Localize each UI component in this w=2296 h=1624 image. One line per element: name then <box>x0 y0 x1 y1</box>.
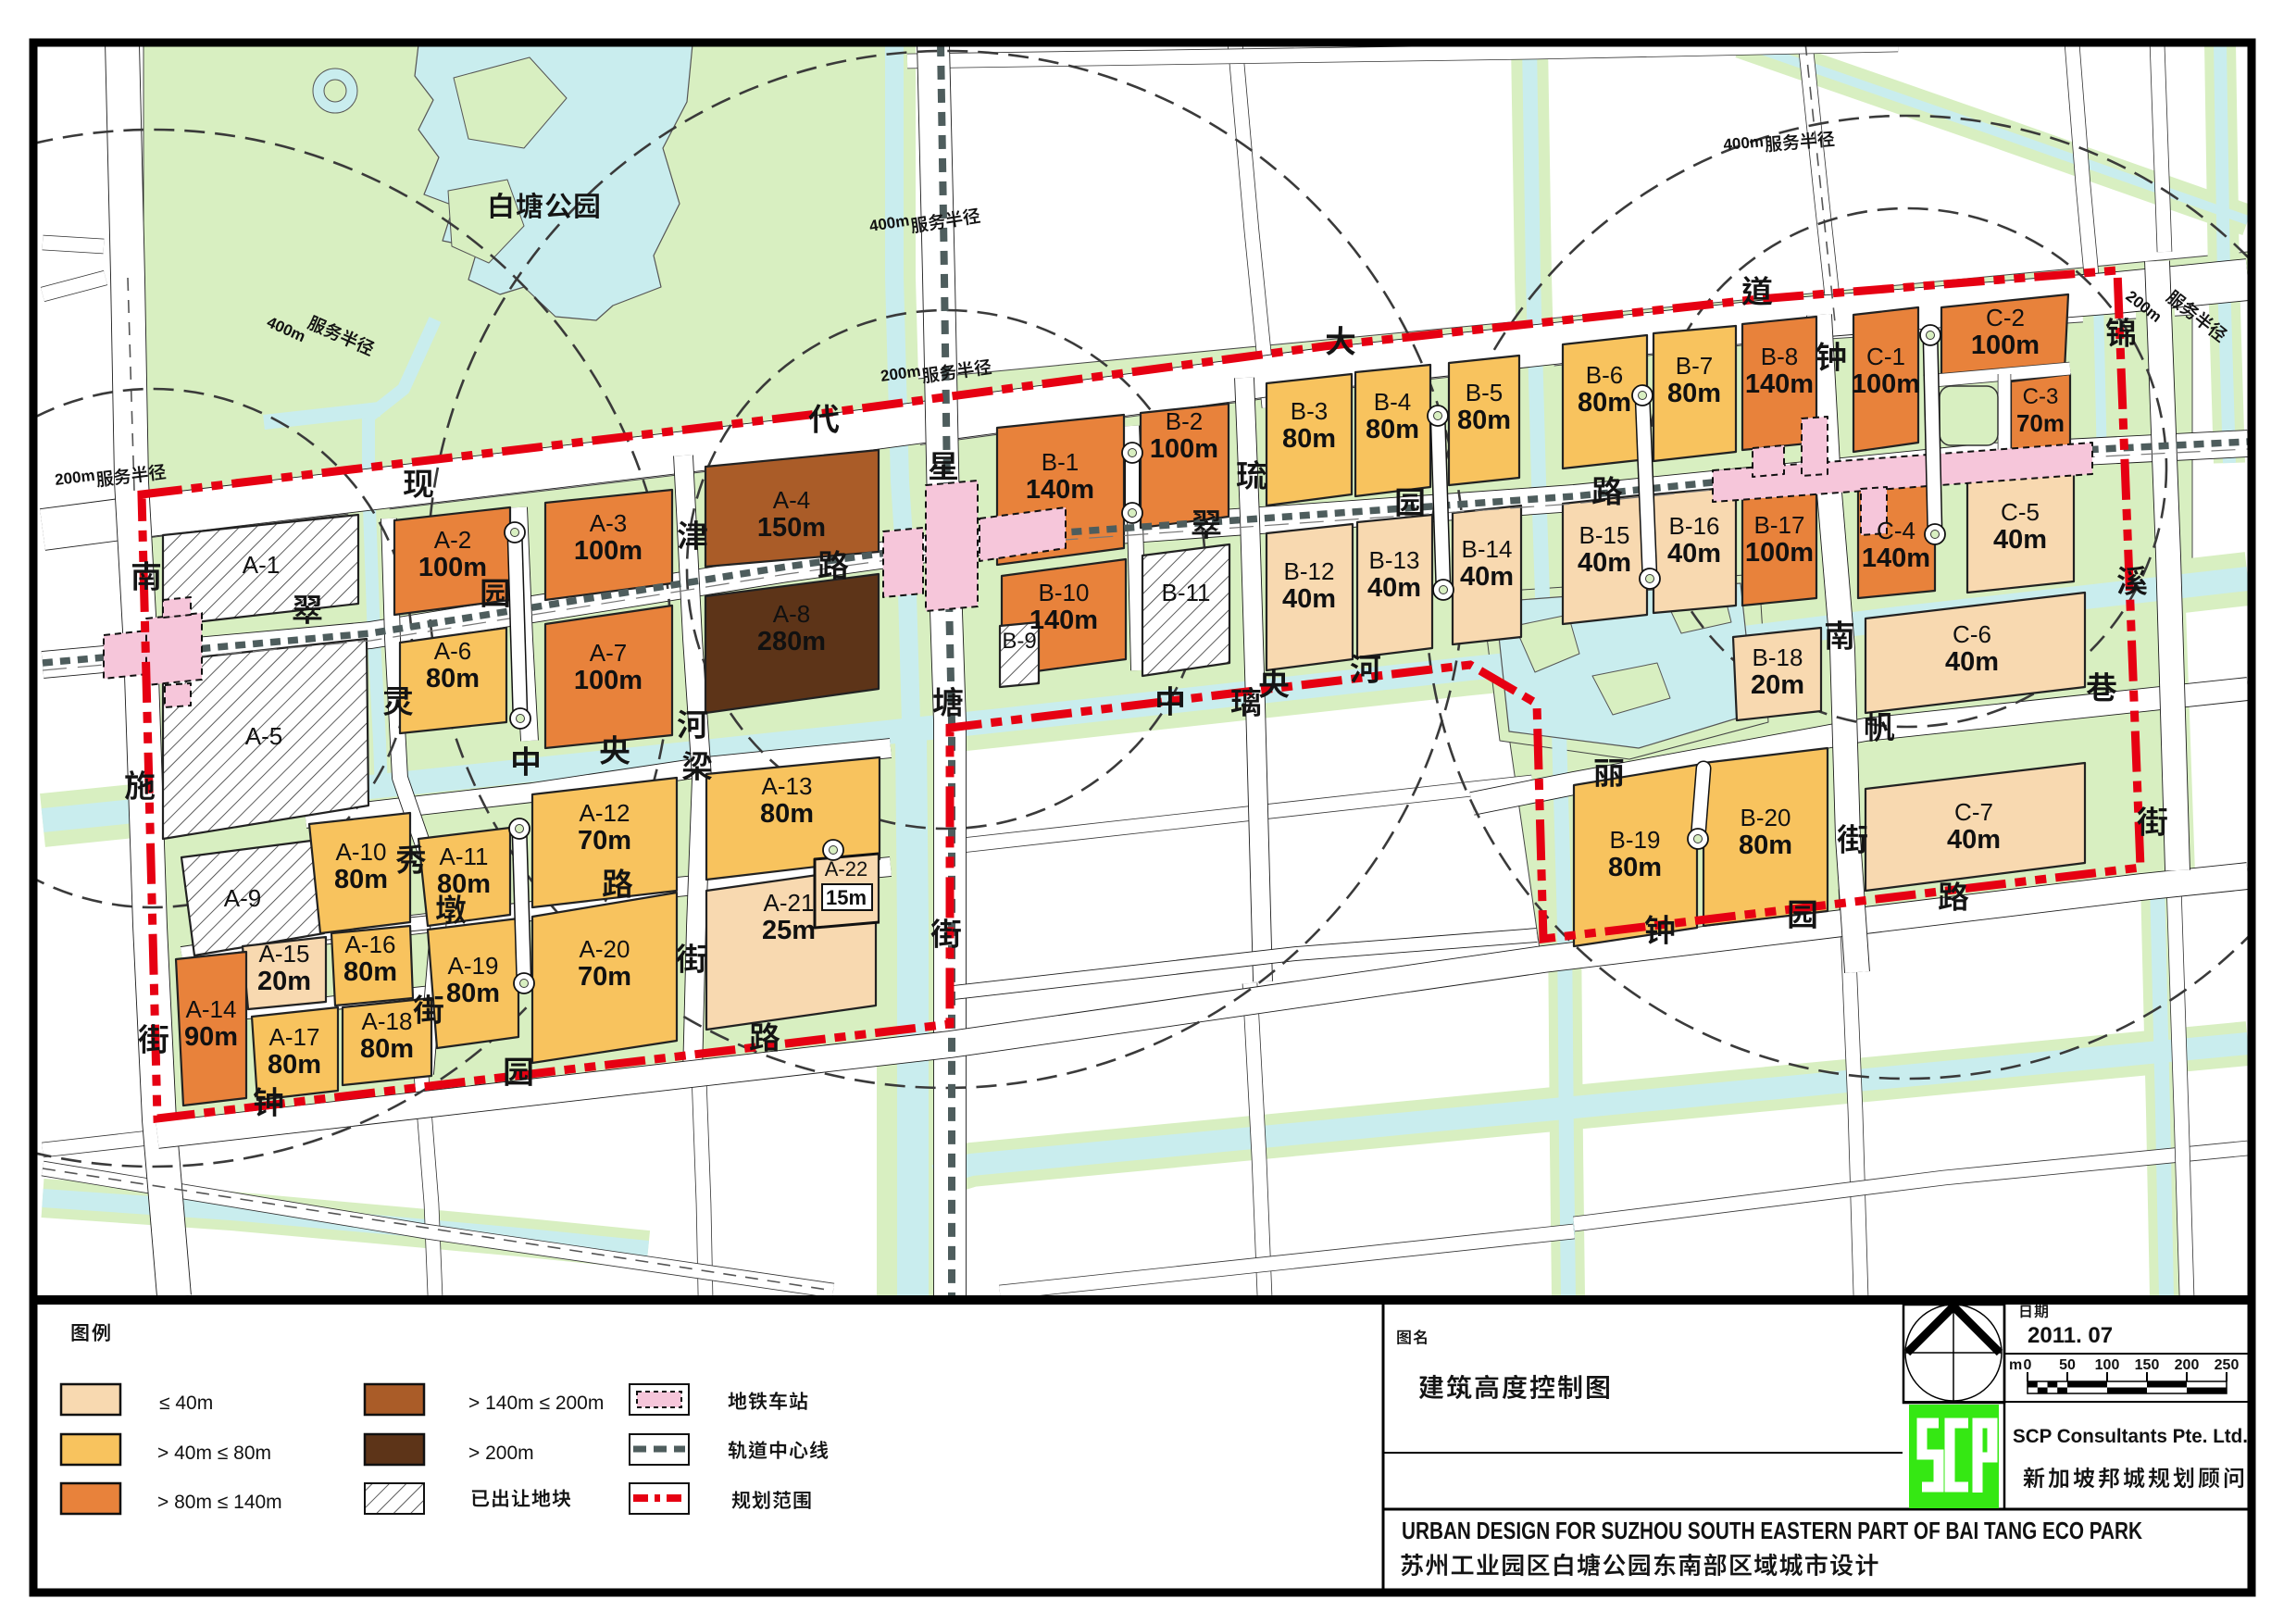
svg-text:0: 0 <box>2024 1357 2032 1373</box>
svg-text:A-12: A-12 <box>580 799 630 827</box>
svg-text:80m: 80m <box>343 957 397 987</box>
svg-text:15m: 15m <box>826 886 867 909</box>
svg-text:A-11: A-11 <box>440 843 489 870</box>
svg-text:A-14: A-14 <box>186 995 237 1023</box>
svg-text:70m: 70m <box>578 826 631 856</box>
svg-text:C-6: C-6 <box>1953 620 1991 648</box>
svg-text:400m: 400m <box>1723 132 1765 154</box>
svg-text:80m: 80m <box>360 1034 414 1064</box>
svg-text:40m: 40m <box>1282 584 1336 614</box>
svg-text:80m: 80m <box>446 979 500 1008</box>
svg-text:80m: 80m <box>1608 853 1662 882</box>
svg-text:m: m <box>2009 1357 2022 1373</box>
svg-text:A-9: A-9 <box>224 884 261 912</box>
svg-text:B-13: B-13 <box>1369 546 1420 574</box>
svg-text:140m: 140m <box>1862 543 1930 573</box>
svg-text:A-1: A-1 <box>243 551 280 579</box>
svg-text:> 40m ≤ 80m: > 40m ≤ 80m <box>157 1443 271 1464</box>
svg-text:80m: 80m <box>1457 406 1511 435</box>
svg-text:A-3: A-3 <box>590 509 627 537</box>
svg-text:80m: 80m <box>1282 424 1336 454</box>
svg-text:B-16: B-16 <box>1669 512 1720 540</box>
svg-text:80m: 80m <box>437 869 491 899</box>
svg-text:20m: 20m <box>257 967 311 996</box>
svg-text:A-17: A-17 <box>269 1023 320 1051</box>
svg-text:≤ 40m: ≤ 40m <box>159 1393 213 1414</box>
svg-text:A-10: A-10 <box>336 838 387 866</box>
svg-text:20m: 20m <box>1751 670 1804 700</box>
svg-text:80m: 80m <box>1739 831 1792 860</box>
svg-text:80m: 80m <box>334 865 388 894</box>
svg-text:B-20: B-20 <box>1741 804 1791 831</box>
svg-text:80m: 80m <box>1366 415 1419 444</box>
svg-text:URBAN DESIGN FOR SUZHOU SOUTH: URBAN DESIGN FOR SUZHOU SOUTH EASTERN PA… <box>1402 1517 2142 1544</box>
svg-text:> 140m ≤ 200m: > 140m ≤ 200m <box>468 1393 604 1414</box>
svg-text:SCP Consultants Pte. Ltd.: SCP Consultants Pte. Ltd. <box>2013 1426 2248 1447</box>
svg-text:A-18: A-18 <box>362 1007 413 1035</box>
svg-text:> 200m: > 200m <box>468 1443 534 1464</box>
svg-text:100: 100 <box>2095 1357 2120 1373</box>
svg-text:100m: 100m <box>1852 369 1920 399</box>
svg-text:C-3: C-3 <box>2023 384 2059 409</box>
svg-text:250: 250 <box>2215 1357 2240 1373</box>
svg-text:B-7: B-7 <box>1676 352 1713 380</box>
svg-text:B-6: B-6 <box>1586 361 1623 389</box>
svg-text:B-17: B-17 <box>1754 511 1805 539</box>
svg-text:B-8: B-8 <box>1761 343 1798 370</box>
svg-text:80m: 80m <box>268 1050 321 1080</box>
svg-text:25m: 25m <box>762 916 816 945</box>
svg-text:C-5: C-5 <box>2001 498 2040 526</box>
svg-text:100m: 100m <box>418 553 487 582</box>
svg-text:B-15: B-15 <box>1579 521 1630 549</box>
svg-text:150: 150 <box>2135 1357 2160 1373</box>
svg-text:40m: 40m <box>1367 573 1421 603</box>
svg-text:C-4: C-4 <box>1877 517 1915 544</box>
svg-text:80m: 80m <box>1578 388 1631 418</box>
svg-text:B-11: B-11 <box>1162 579 1211 606</box>
svg-text:A-13: A-13 <box>762 772 813 800</box>
svg-text:2011. 07: 2011. 07 <box>2028 1323 2113 1348</box>
svg-text:140m: 140m <box>1026 475 1094 505</box>
svg-text:B-2: B-2 <box>1166 407 1203 435</box>
svg-text:100m: 100m <box>574 536 643 566</box>
svg-text:200: 200 <box>2175 1357 2200 1373</box>
svg-text:70m: 70m <box>578 962 631 992</box>
svg-text:280m: 280m <box>757 627 826 656</box>
svg-text:80m: 80m <box>1667 379 1721 408</box>
svg-text:A-8: A-8 <box>773 600 810 628</box>
svg-text:80m: 80m <box>426 664 480 693</box>
svg-text:A-19: A-19 <box>448 952 499 980</box>
svg-text:B-12: B-12 <box>1284 557 1335 585</box>
svg-text:140m: 140m <box>1029 606 1098 635</box>
svg-text:B-19: B-19 <box>1610 826 1661 854</box>
svg-text:A-6: A-6 <box>434 637 471 665</box>
svg-text:A-20: A-20 <box>580 935 630 963</box>
svg-text:150m: 150m <box>757 513 826 543</box>
svg-text:B-1: B-1 <box>1042 448 1079 476</box>
svg-text:100m: 100m <box>1971 331 2040 360</box>
svg-text:A-22: A-22 <box>825 857 867 881</box>
svg-text:140m: 140m <box>1745 369 1814 399</box>
svg-text:A-16: A-16 <box>345 931 396 958</box>
svg-text:A-21: A-21 <box>764 889 815 917</box>
svg-text:100m: 100m <box>1745 538 1814 568</box>
svg-text:B-10: B-10 <box>1039 579 1090 606</box>
svg-text:> 80m ≤ 140m: > 80m ≤ 140m <box>157 1492 282 1513</box>
svg-text:40m: 40m <box>1945 647 1999 677</box>
svg-text:A-7: A-7 <box>590 639 627 667</box>
svg-text:40m: 40m <box>1993 525 2047 555</box>
svg-text:40m: 40m <box>1460 562 1514 592</box>
svg-text:40m: 40m <box>1667 539 1721 568</box>
svg-text:100m: 100m <box>574 666 643 695</box>
svg-text:B-5: B-5 <box>1466 379 1503 406</box>
svg-text:40m: 40m <box>1578 548 1631 578</box>
svg-text:A-4: A-4 <box>773 486 810 514</box>
svg-text:A-2: A-2 <box>434 526 471 554</box>
svg-text:B-14: B-14 <box>1462 535 1513 563</box>
svg-text:40m: 40m <box>1947 825 2001 855</box>
svg-text:B-3: B-3 <box>1291 397 1328 425</box>
svg-text:100m: 100m <box>1150 434 1218 464</box>
svg-text:90m: 90m <box>184 1022 238 1052</box>
svg-text:C-1: C-1 <box>1866 343 1905 370</box>
svg-text:70m: 70m <box>2016 409 2065 437</box>
svg-text:C-2: C-2 <box>1986 304 2025 331</box>
svg-text:B-4: B-4 <box>1374 388 1411 416</box>
svg-text:B-18: B-18 <box>1753 643 1803 671</box>
svg-text:50: 50 <box>2059 1357 2076 1373</box>
svg-text:A-5: A-5 <box>245 722 282 750</box>
svg-text:C-7: C-7 <box>1954 798 1993 826</box>
svg-text:A-15: A-15 <box>259 940 310 968</box>
svg-text:80m: 80m <box>760 799 814 829</box>
